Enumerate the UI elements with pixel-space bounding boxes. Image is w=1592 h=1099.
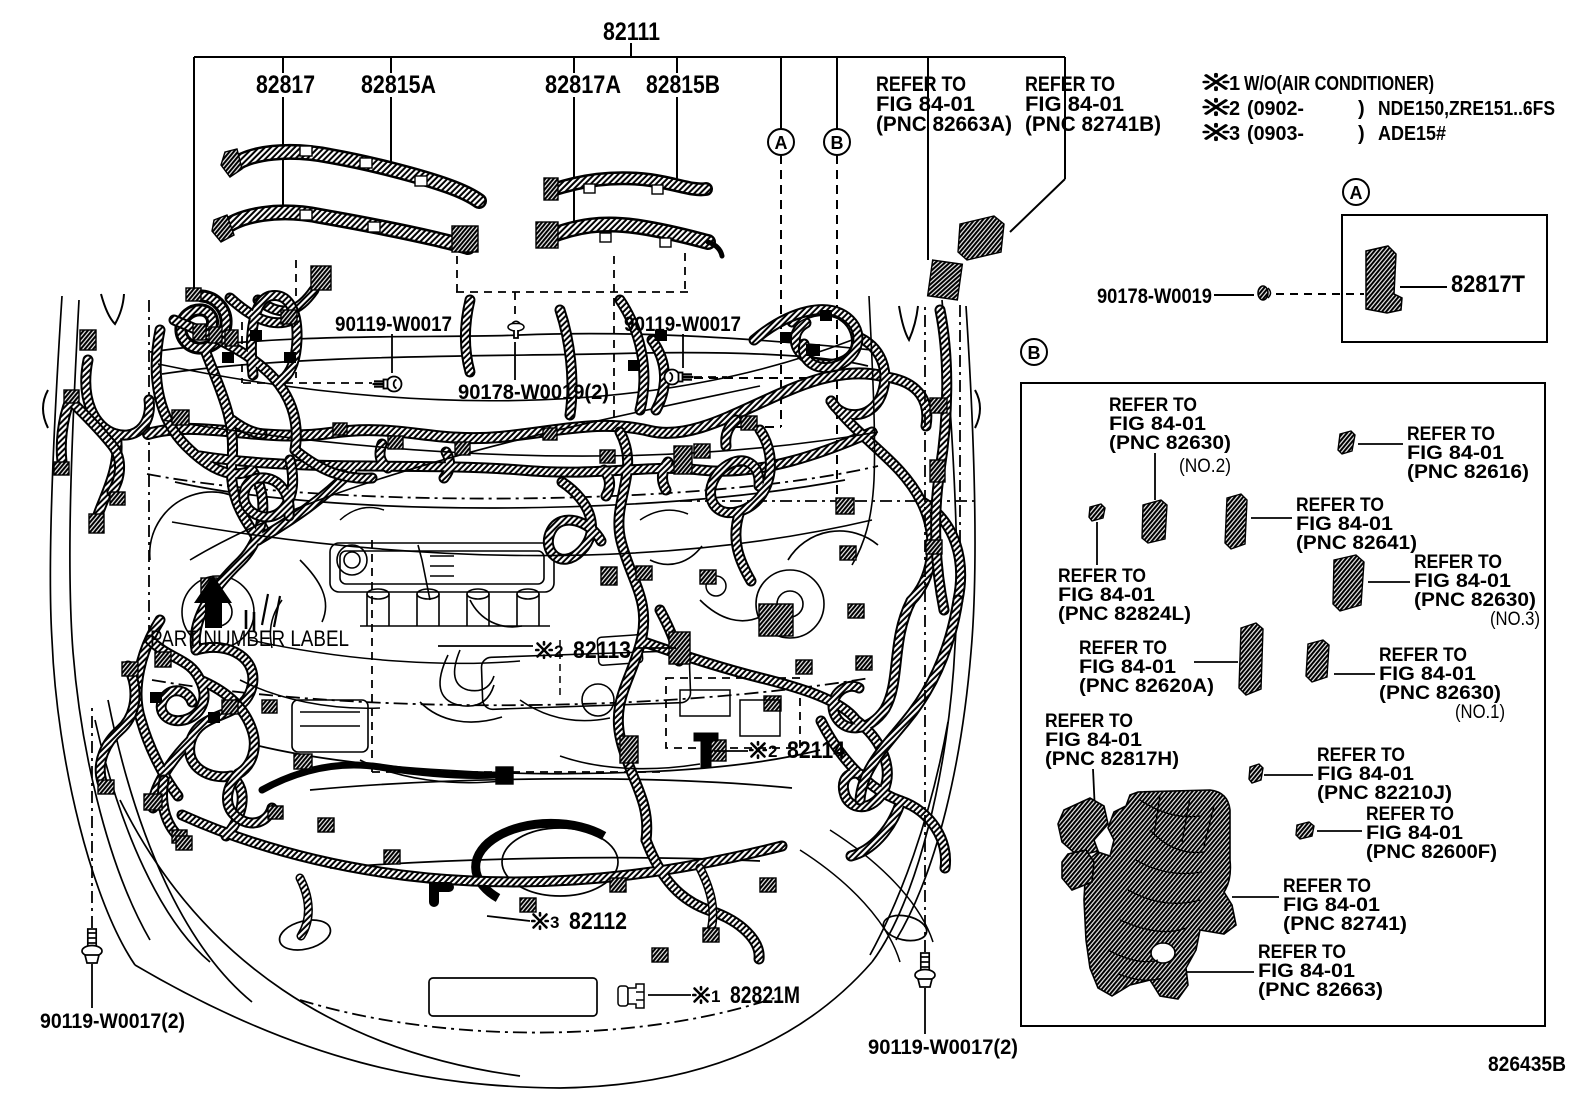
svg-text:PART NUMBER LABEL: PART NUMBER LABEL (150, 626, 349, 651)
svg-text:FIG 84-01: FIG 84-01 (1109, 414, 1206, 435)
svg-text:(PNC 82630): (PNC 82630) (1379, 683, 1501, 704)
svg-text:FIG 84-01: FIG 84-01 (1414, 571, 1511, 592)
svg-text:(PNC 82741B): (PNC 82741B) (1025, 113, 1161, 136)
svg-text:82113: 82113 (573, 637, 631, 664)
svg-text:FIG 84-01: FIG 84-01 (1366, 823, 1463, 844)
svg-text:90119-W0017: 90119-W0017 (335, 313, 452, 336)
svg-text:(PNC 82741): (PNC 82741) (1283, 914, 1407, 935)
svg-text:82114: 82114 (787, 737, 846, 764)
svg-text:REFER TO: REFER TO (1296, 495, 1384, 516)
svg-text:REFER TO: REFER TO (1414, 552, 1502, 573)
svg-text:FIG 84-01: FIG 84-01 (1317, 764, 1414, 785)
svg-text:FIG 84-01: FIG 84-01 (1079, 657, 1176, 678)
svg-text:FIG 84-01: FIG 84-01 (1258, 961, 1355, 982)
svg-text:82111: 82111 (603, 18, 660, 46)
svg-text:(PNC 82616): (PNC 82616) (1407, 462, 1529, 483)
svg-text:3: 3 (1229, 123, 1240, 145)
svg-text:(PNC 82663): (PNC 82663) (1258, 980, 1383, 1001)
svg-text:1: 1 (711, 987, 720, 1006)
svg-text:90178-W0019: 90178-W0019 (1097, 285, 1212, 308)
svg-text:(NO.2): (NO.2) (1179, 456, 1231, 477)
svg-text:(PNC 82210J): (PNC 82210J) (1317, 783, 1452, 804)
svg-text:90119-W0017: 90119-W0017 (624, 313, 741, 336)
svg-text:REFER TO: REFER TO (1109, 395, 1197, 416)
svg-text:90119-W0017(2): 90119-W0017(2) (868, 1036, 1018, 1059)
svg-text:82817T: 82817T (1451, 271, 1525, 298)
svg-text:(NO.3): (NO.3) (1490, 609, 1540, 630)
svg-text:REFER TO: REFER TO (1407, 424, 1495, 445)
svg-text:82112: 82112 (569, 908, 627, 935)
svg-text:82815A: 82815A (361, 71, 436, 99)
svg-text:FIG 84-01: FIG 84-01 (1283, 895, 1380, 916)
svg-text:2: 2 (554, 642, 563, 661)
svg-text:): ) (1358, 123, 1365, 145)
svg-text:2: 2 (1229, 98, 1240, 120)
svg-text:2: 2 (768, 742, 777, 761)
svg-text:FIG 84-01: FIG 84-01 (1045, 730, 1142, 751)
svg-text:FIG 84-01: FIG 84-01 (1379, 664, 1476, 685)
svg-text:FIG 84-01: FIG 84-01 (1296, 514, 1393, 535)
svg-text:82821M: 82821M (730, 982, 800, 1009)
svg-text:(PNC 82630): (PNC 82630) (1414, 590, 1536, 611)
svg-text:REFER TO: REFER TO (1079, 638, 1167, 659)
svg-text:1: 1 (1229, 73, 1240, 95)
svg-text:A: A (775, 133, 788, 153)
svg-text:826435B: 826435B (1488, 1053, 1566, 1076)
svg-text:ADE15#: ADE15# (1378, 123, 1446, 145)
svg-text:(PNC 82824L): (PNC 82824L) (1058, 604, 1191, 625)
svg-text:REFER TO: REFER TO (1045, 711, 1133, 732)
svg-text:3: 3 (550, 913, 559, 932)
svg-text:82817: 82817 (256, 71, 315, 99)
svg-text:90178-W0019(2): 90178-W0019(2) (458, 381, 609, 404)
svg-text:(PNC 82600F): (PNC 82600F) (1366, 842, 1497, 863)
svg-text:NDE150,ZRE151..6FS: NDE150,ZRE151..6FS (1378, 98, 1555, 120)
svg-text:REFER TO: REFER TO (1058, 566, 1146, 587)
svg-text:(PNC 82663A): (PNC 82663A) (876, 113, 1012, 136)
svg-text:REFER TO: REFER TO (1258, 942, 1346, 963)
svg-text:FIG 84-01: FIG 84-01 (1058, 585, 1155, 606)
svg-text:(0902-: (0902- (1247, 98, 1304, 120)
svg-text:REFER TO: REFER TO (1366, 804, 1454, 825)
svg-text:90119-W0017(2): 90119-W0017(2) (40, 1010, 185, 1033)
svg-text:): ) (1358, 98, 1365, 120)
svg-text:82815B: 82815B (646, 71, 720, 99)
svg-text:(NO.1): (NO.1) (1455, 702, 1505, 723)
svg-text:W/O(AIR CONDITIONER): W/O(AIR CONDITIONER) (1244, 73, 1434, 95)
svg-text:(0903-: (0903- (1247, 123, 1304, 145)
svg-text:B: B (831, 133, 844, 153)
svg-text:(PNC 82817H): (PNC 82817H) (1045, 749, 1179, 770)
svg-text:REFER TO: REFER TO (1283, 876, 1371, 897)
svg-text:(PNC 82641): (PNC 82641) (1296, 533, 1417, 554)
svg-text:(PNC 82620A): (PNC 82620A) (1079, 676, 1214, 697)
svg-text:82817A: 82817A (545, 71, 621, 99)
svg-text:FIG 84-01: FIG 84-01 (1407, 443, 1504, 464)
svg-text:REFER TO: REFER TO (1379, 645, 1467, 666)
svg-text:B: B (1028, 343, 1041, 363)
svg-text:A: A (1350, 183, 1363, 203)
svg-text:REFER TO: REFER TO (1317, 745, 1405, 766)
svg-text:(PNC 82630): (PNC 82630) (1109, 433, 1231, 454)
